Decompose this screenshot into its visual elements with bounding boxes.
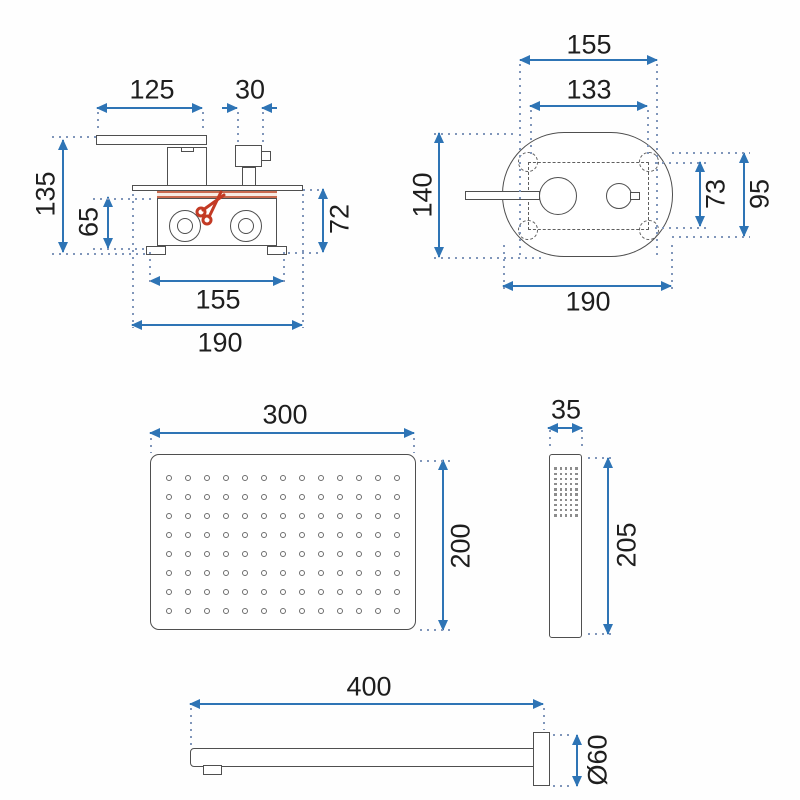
- extension-line: [672, 152, 750, 154]
- extension-line: [434, 257, 545, 259]
- nozzle-dot: [299, 570, 305, 576]
- nozzle-dot: [204, 589, 210, 595]
- mixer-right-height-label: 72: [327, 204, 354, 234]
- nozzle-dot: [185, 475, 191, 481]
- faceplate-height-label: 140: [410, 172, 437, 217]
- nozzle-dot: [394, 551, 400, 557]
- nozzle-dot: [375, 589, 381, 595]
- nozzle-dot: [337, 532, 343, 538]
- nozzle-dot: [554, 488, 557, 491]
- mixer-plate-width-label: 190: [197, 330, 242, 357]
- mixer-spout-length-label: 125: [129, 77, 174, 104]
- nozzle-dot: [280, 589, 286, 595]
- nozzle-dot: [356, 551, 362, 557]
- nozzle-dot: [565, 499, 568, 502]
- nozzle-dot: [570, 467, 573, 470]
- extension-line: [519, 64, 521, 256]
- mixer-cartridge-body: [167, 147, 207, 187]
- nozzle-dot: [375, 513, 381, 519]
- nozzle-dot: [565, 504, 568, 507]
- nozzle-dot: [299, 589, 305, 595]
- faceplate-width-label: 190: [565, 289, 610, 316]
- nozzle-dot: [318, 589, 324, 595]
- nozzle-dot: [242, 551, 248, 557]
- nozzle-dot: [337, 570, 343, 576]
- nozzle-dot: [575, 488, 578, 491]
- nozzle-dot: [560, 509, 563, 512]
- dim-arrow-plate-height: [438, 133, 440, 257]
- nozzle-dot: [223, 494, 229, 500]
- arm-length-label: 400: [346, 674, 391, 701]
- nozzle-dot: [166, 532, 172, 538]
- nozzle-dot: [570, 514, 573, 517]
- extension-line: [655, 227, 707, 229]
- mixer-box-height-label: 65: [76, 207, 103, 237]
- nozzle-dot: [570, 504, 573, 507]
- faceplate-lever: [465, 191, 540, 200]
- extension-line: [93, 248, 145, 250]
- nozzle-dot: [575, 504, 578, 507]
- nozzle-dot: [261, 589, 267, 595]
- nozzle-dot: [166, 589, 172, 595]
- nozzle-dot: [356, 589, 362, 595]
- nozzle-dot: [166, 570, 172, 576]
- nozzle-dot: [280, 475, 286, 481]
- mixer-left-inlet-inner: [177, 218, 193, 234]
- extension-line: [672, 236, 750, 238]
- extension-line: [202, 112, 204, 132]
- faceplate-right-outer-height-label: 95: [747, 179, 774, 209]
- nozzle-dot: [337, 608, 343, 614]
- extension-line: [530, 110, 532, 158]
- nozzle-dot: [280, 551, 286, 557]
- dim-arrow-head-height: [442, 460, 444, 630]
- nozzle-dot: [560, 478, 563, 481]
- nozzle-dot: [575, 467, 578, 470]
- nozzle-dot: [554, 473, 557, 476]
- nozzle-dot: [575, 499, 578, 502]
- nozzle-dot: [318, 475, 324, 481]
- nozzle-dot: [261, 608, 267, 614]
- dim-arrow-flange-diameter: [576, 735, 578, 786]
- extension-line: [581, 430, 583, 450]
- nozzle-dot: [560, 483, 563, 486]
- nozzle-dot: [565, 493, 568, 496]
- nozzle-dot: [394, 475, 400, 481]
- arm-tube: [190, 748, 536, 767]
- nozzle-dot: [554, 504, 557, 507]
- extension-line: [553, 734, 569, 736]
- nozzle-dot: [223, 475, 229, 481]
- dim-arrow-knob-width-right: [262, 107, 277, 109]
- extension-line: [413, 438, 415, 453]
- nozzle-dot: [185, 532, 191, 538]
- head-width-label: 300: [262, 402, 307, 429]
- nozzle-dot: [575, 483, 578, 486]
- extension-line: [434, 133, 518, 135]
- nozzle-dot: [337, 513, 343, 519]
- mixer-box-width-label: 155: [195, 287, 240, 314]
- extension-line: [132, 194, 134, 328]
- nozzle-dot: [280, 532, 286, 538]
- nozzle-dot: [560, 467, 563, 470]
- nozzle-dot: [261, 475, 267, 481]
- nozzle-dot: [318, 570, 324, 576]
- nozzle-dot: [261, 551, 267, 557]
- nozzle-dot: [570, 473, 573, 476]
- nozzle-dot: [185, 494, 191, 500]
- extension-line: [149, 252, 151, 283]
- nozzle-dot: [261, 494, 267, 500]
- faceplate-diverter-knob: [606, 183, 632, 209]
- shower-head-nozzles: [160, 468, 406, 620]
- extension-line: [237, 112, 239, 143]
- nozzle-dot: [565, 488, 568, 491]
- nozzle-dot: [560, 504, 563, 507]
- nozzle-dot: [166, 608, 172, 614]
- nozzle-dot: [356, 570, 362, 576]
- mixer-total-height-label: 135: [33, 171, 60, 216]
- nozzle-dot: [565, 473, 568, 476]
- nozzle-dot: [185, 513, 191, 519]
- nozzle-dot: [560, 514, 563, 517]
- nozzle-dot: [166, 551, 172, 557]
- nozzle-dot: [375, 570, 381, 576]
- nozzle-dot: [318, 513, 324, 519]
- nozzle-dot: [394, 589, 400, 595]
- dim-arrow-arm-length: [190, 703, 543, 705]
- nozzle-dot: [560, 488, 563, 491]
- mixer-right-inlet-inner: [238, 218, 254, 234]
- nozzle-dot: [261, 513, 267, 519]
- technical-drawing-canvas: 125 30 135 65 72 155 190: [0, 0, 800, 800]
- mixer-knob-head: [235, 145, 262, 167]
- faceplate-top-inner-width-label: 133: [566, 77, 611, 104]
- nozzle-dot: [318, 494, 324, 500]
- extension-line: [150, 438, 152, 453]
- nozzle-dot: [337, 494, 343, 500]
- nozzle-dot: [554, 467, 557, 470]
- nozzle-dot: [565, 514, 568, 517]
- nozzle-dot: [570, 493, 573, 496]
- extension-line: [283, 252, 285, 283]
- nozzle-dot: [565, 467, 568, 470]
- dim-arrow-hand-width: [548, 427, 582, 429]
- nozzle-dot: [299, 513, 305, 519]
- extension-line: [262, 112, 264, 143]
- nozzle-dot: [185, 570, 191, 576]
- extension-line: [549, 430, 551, 450]
- nozzle-dot: [375, 551, 381, 557]
- nozzle-dot: [204, 475, 210, 481]
- hand-width-label: 35: [551, 397, 581, 424]
- nozzle-dot: [570, 499, 573, 502]
- nozzle-dot: [223, 532, 229, 538]
- nozzle-dot: [394, 608, 400, 614]
- nozzle-dot: [560, 473, 563, 476]
- nozzle-dot: [356, 608, 362, 614]
- extension-line: [52, 136, 97, 138]
- nozzle-dot: [299, 551, 305, 557]
- nozzle-dot: [356, 475, 362, 481]
- dim-arrow-knob-width-left: [222, 107, 237, 109]
- mixer-cartridge-detail: [181, 147, 194, 152]
- dim-arrow-box-width: [150, 280, 283, 282]
- nozzle-dot: [394, 570, 400, 576]
- nozzle-dot: [261, 532, 267, 538]
- nozzle-dot: [554, 493, 557, 496]
- extension-line: [671, 245, 673, 290]
- head-height-label: 200: [448, 523, 475, 568]
- dim-arrow-spout-length: [97, 107, 202, 109]
- mixer-knob-nub: [261, 151, 271, 161]
- nozzle-dot: [375, 475, 381, 481]
- extension-line: [543, 708, 545, 730]
- nozzle-dot: [554, 514, 557, 517]
- dim-arrow-box-height: [107, 197, 109, 248]
- nozzle-dot: [185, 551, 191, 557]
- nozzle-dot: [337, 589, 343, 595]
- nozzle-dot: [575, 473, 578, 476]
- nozzle-dot: [394, 532, 400, 538]
- faceplate-mixer-knob: [539, 177, 577, 215]
- nozzle-dot: [280, 494, 286, 500]
- extension-line: [288, 252, 318, 254]
- faceplate-cutout-corner-circle: [518, 152, 538, 172]
- hand-shower-nozzles: [553, 466, 579, 518]
- nozzle-dot: [318, 608, 324, 614]
- nozzle-dot: [575, 478, 578, 481]
- nozzle-dot: [242, 608, 248, 614]
- hand-height-label: 205: [614, 522, 641, 567]
- extension-line: [302, 194, 304, 328]
- nozzle-dot: [394, 494, 400, 500]
- nozzle-dot: [575, 514, 578, 517]
- nozzle-dot: [318, 551, 324, 557]
- nozzle-dot: [570, 509, 573, 512]
- nozzle-dot: [166, 475, 172, 481]
- dim-arrow-total-height: [62, 140, 64, 252]
- nozzle-dot: [299, 532, 305, 538]
- nozzle-dot: [185, 589, 191, 595]
- nozzle-dot: [261, 570, 267, 576]
- extension-line: [303, 189, 321, 191]
- nozzle-dot: [575, 509, 578, 512]
- nozzle-dot: [394, 513, 400, 519]
- nozzle-dot: [570, 483, 573, 486]
- nozzle-dot: [375, 494, 381, 500]
- dim-arrow-hand-height: [607, 458, 609, 634]
- arm-wall-flange: [533, 732, 550, 786]
- nozzle-dot: [223, 551, 229, 557]
- nozzle-dot: [560, 493, 563, 496]
- nozzle-dot: [242, 570, 248, 576]
- nozzle-dot: [204, 608, 210, 614]
- extension-line: [503, 245, 505, 290]
- nozzle-dot: [554, 509, 557, 512]
- nozzle-dot: [185, 608, 191, 614]
- nozzle-dot: [565, 478, 568, 481]
- nozzle-dot: [204, 551, 210, 557]
- nozzle-dot: [318, 532, 324, 538]
- nozzle-dot: [337, 475, 343, 481]
- nozzle-dot: [223, 513, 229, 519]
- mixer-spout: [96, 135, 207, 145]
- nozzle-dot: [204, 570, 210, 576]
- nozzle-dot: [560, 499, 563, 502]
- nozzle-dot: [570, 478, 573, 481]
- dim-arrow-top-inner-width: [530, 105, 647, 107]
- nozzle-dot: [554, 499, 557, 502]
- nozzle-dot: [242, 532, 248, 538]
- nozzle-dot: [337, 551, 343, 557]
- nozzle-dot: [242, 475, 248, 481]
- nozzle-dot: [204, 532, 210, 538]
- nozzle-dot: [223, 570, 229, 576]
- extension-line: [655, 162, 707, 164]
- nozzle-dot: [356, 513, 362, 519]
- nozzle-dot: [356, 532, 362, 538]
- extension-line: [97, 112, 99, 132]
- nozzle-dot: [565, 509, 568, 512]
- nozzle-dot: [280, 608, 286, 614]
- extension-line: [93, 198, 155, 200]
- nozzle-dot: [299, 475, 305, 481]
- nozzle-dot: [166, 494, 172, 500]
- nozzle-dot: [554, 478, 557, 481]
- nozzle-dot: [280, 570, 286, 576]
- nozzle-dot: [242, 513, 248, 519]
- nozzle-dot: [565, 483, 568, 486]
- extension-line: [588, 457, 614, 459]
- arm-flange-diameter-label: Ø60: [585, 734, 612, 785]
- faceplate-diverter-nub: [630, 192, 640, 200]
- nozzle-dot: [299, 494, 305, 500]
- nozzle-dot: [223, 589, 229, 595]
- faceplate-top-outer-width-label: 155: [566, 32, 611, 59]
- nozzle-dot: [575, 493, 578, 496]
- nozzle-dot: [242, 589, 248, 595]
- extension-line: [647, 110, 649, 158]
- mixer-knob-width-label: 30: [235, 77, 265, 104]
- nozzle-dot: [280, 513, 286, 519]
- scissors-icon: [193, 189, 231, 227]
- extension-line: [588, 633, 614, 635]
- extension-line: [420, 460, 452, 462]
- faceplate-right-inner-height-label: 73: [703, 179, 730, 209]
- faceplate-cutout-corner-circle: [518, 220, 538, 240]
- mixer-knob-stem: [242, 167, 256, 187]
- nozzle-dot: [570, 488, 573, 491]
- extension-line: [190, 708, 192, 746]
- dim-arrow-plate-width: [132, 324, 302, 326]
- nozzle-dot: [204, 494, 210, 500]
- extension-line: [420, 629, 452, 631]
- nozzle-dot: [554, 483, 557, 486]
- arm-outlet-nub: [203, 765, 222, 775]
- nozzle-dot: [299, 608, 305, 614]
- nozzle-dot: [375, 532, 381, 538]
- extension-line: [553, 785, 569, 787]
- nozzle-dot: [375, 608, 381, 614]
- dim-arrow-head-width: [150, 432, 414, 434]
- nozzle-dot: [204, 513, 210, 519]
- nozzle-dot: [223, 608, 229, 614]
- nozzle-dot: [166, 513, 172, 519]
- nozzle-dot: [242, 494, 248, 500]
- nozzle-dot: [356, 494, 362, 500]
